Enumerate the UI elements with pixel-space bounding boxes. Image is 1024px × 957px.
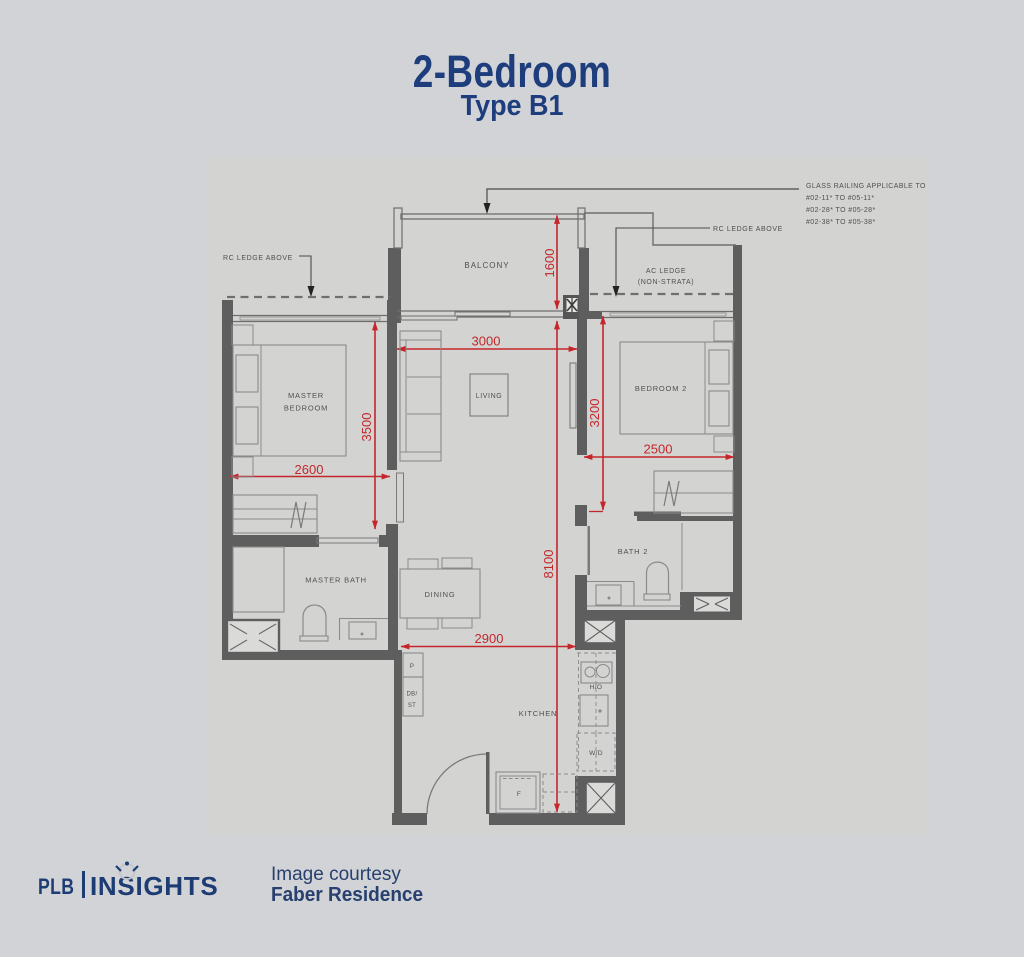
svg-text:1600: 1600 bbox=[542, 249, 557, 278]
svg-text:KITCHEN: KITCHEN bbox=[519, 709, 558, 718]
svg-text:BEDROOM: BEDROOM bbox=[284, 404, 328, 413]
svg-text:RC LEDGE ABOVE: RC LEDGE ABOVE bbox=[713, 226, 783, 233]
svg-text:(NON-STRATA): (NON-STRATA) bbox=[638, 279, 694, 286]
svg-text:#02-28* TO #05-28*: #02-28* TO #05-28* bbox=[806, 207, 876, 214]
svg-text:8100: 8100 bbox=[541, 550, 556, 579]
svg-text:LIVING: LIVING bbox=[476, 393, 503, 400]
svg-text:2500: 2500 bbox=[644, 442, 673, 457]
svg-text:W/D: W/D bbox=[589, 750, 603, 757]
svg-text:DINING: DINING bbox=[424, 590, 455, 599]
svg-text:DB/: DB/ bbox=[407, 692, 418, 698]
svg-text:ST: ST bbox=[408, 703, 416, 709]
svg-text:2600: 2600 bbox=[295, 462, 324, 477]
svg-text:3000: 3000 bbox=[472, 334, 501, 349]
svg-text:BATH 2: BATH 2 bbox=[618, 547, 649, 556]
svg-text:#02-11* TO #05-11*: #02-11* TO #05-11* bbox=[806, 195, 875, 202]
svg-text:BALCONY: BALCONY bbox=[464, 261, 509, 270]
svg-text:MASTER: MASTER bbox=[288, 391, 324, 400]
svg-text:2900: 2900 bbox=[475, 631, 504, 646]
svg-text:H/O: H/O bbox=[590, 684, 603, 691]
svg-text:MASTER BATH: MASTER BATH bbox=[305, 576, 367, 585]
svg-text:GLASS RAILING APPLICABLE TO: GLASS RAILING APPLICABLE TO bbox=[806, 183, 926, 190]
svg-text:#02-38* TO #05-38*: #02-38* TO #05-38* bbox=[806, 219, 876, 226]
svg-text:F: F bbox=[517, 791, 521, 798]
svg-text:BEDROOM 2: BEDROOM 2 bbox=[635, 384, 687, 393]
svg-text:3200: 3200 bbox=[587, 399, 602, 428]
svg-text:AC LEDGE: AC LEDGE bbox=[646, 268, 686, 275]
svg-text:P: P bbox=[410, 664, 414, 670]
svg-text:RC LEDGE ABOVE: RC LEDGE ABOVE bbox=[223, 255, 293, 262]
svg-text:3500: 3500 bbox=[359, 413, 374, 442]
